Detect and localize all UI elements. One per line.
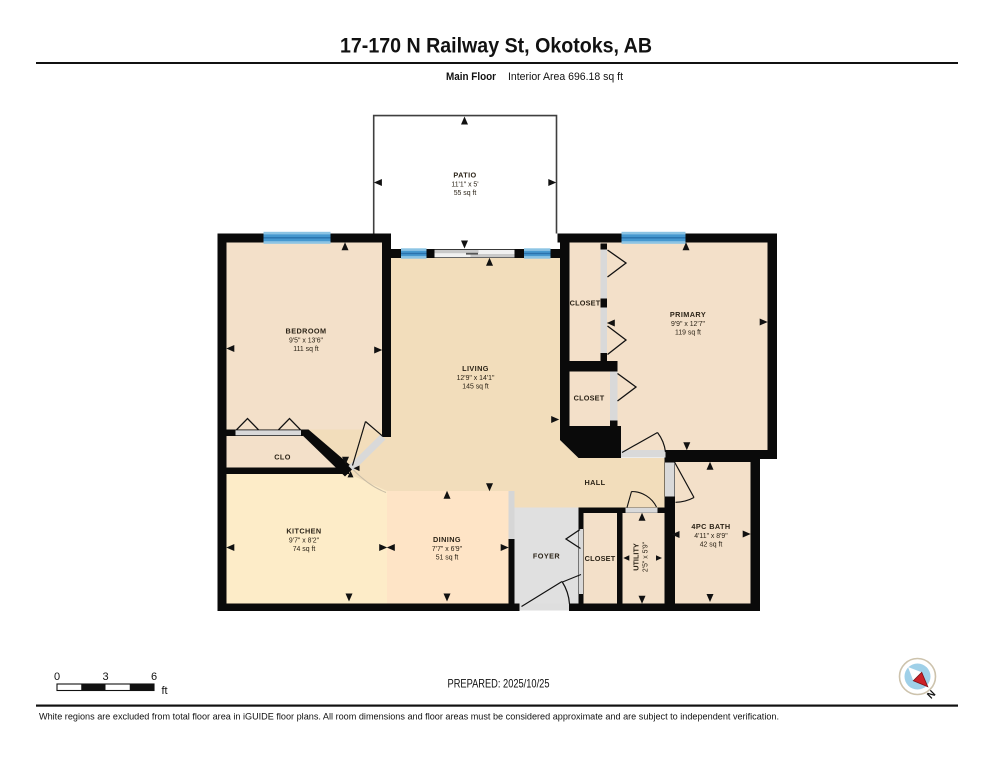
svg-text:9'7" x 8'2": 9'7" x 8'2" [289,538,320,545]
svg-text:LIVING: LIVING [462,364,489,373]
svg-text:PRIMARY: PRIMARY [670,310,706,319]
svg-text:6: 6 [151,671,157,683]
svg-text:119 sq ft: 119 sq ft [675,330,701,337]
svg-text:Main Floor: Main Floor [446,71,497,83]
svg-text:Interior Area 696.18 sq ft: Interior Area 696.18 sq ft [508,71,623,83]
svg-text:2'5" x 5'9": 2'5" x 5'9" [643,541,650,572]
svg-text:55 sq ft: 55 sq ft [454,190,477,197]
svg-text:CLO: CLO [274,453,291,462]
svg-text:HALL: HALL [584,478,605,487]
svg-text:145 sq ft: 145 sq ft [462,384,489,391]
svg-text:51 sq ft: 51 sq ft [436,555,459,562]
svg-text:3: 3 [102,671,108,683]
svg-text:4'11" x 8'9": 4'11" x 8'9" [694,533,728,540]
svg-text:4PC BATH: 4PC BATH [691,522,730,531]
svg-text:74 sq ft: 74 sq ft [293,546,316,553]
svg-text:BEDROOM: BEDROOM [286,327,327,336]
svg-text:PREPARED: 2025/10/25: PREPARED: 2025/10/25 [448,677,550,691]
svg-text:White regions are excluded fro: White regions are excluded from total fl… [39,712,779,722]
svg-text:7'7" x 6'9": 7'7" x 6'9" [432,546,463,553]
svg-text:CLOSET: CLOSET [570,299,601,308]
svg-text:9'9" x 12'7": 9'9" x 12'7" [671,321,706,328]
svg-text:KITCHEN: KITCHEN [286,527,321,536]
svg-text:42 sq ft: 42 sq ft [700,542,723,549]
svg-text:CLOSET: CLOSET [574,394,605,403]
svg-text:9'5" x 13'6": 9'5" x 13'6" [289,338,324,345]
svg-text:ft: ft [162,685,168,697]
svg-text:11'1" x 5': 11'1" x 5' [451,182,478,189]
svg-text:12'9" x 14'1": 12'9" x 14'1" [457,375,495,382]
svg-text:CLOSET: CLOSET [585,554,616,563]
svg-text:UTILITY: UTILITY [632,543,641,571]
svg-text:0: 0 [54,671,60,683]
svg-text:PATIO: PATIO [453,171,476,180]
svg-text:DINING: DINING [433,535,461,544]
svg-text:111 sq ft: 111 sq ft [293,346,318,353]
svg-text:FOYER: FOYER [533,552,560,561]
svg-text:17-170 N Railway St, Okotoks,: 17-170 N Railway St, Okotoks, AB [340,34,652,58]
